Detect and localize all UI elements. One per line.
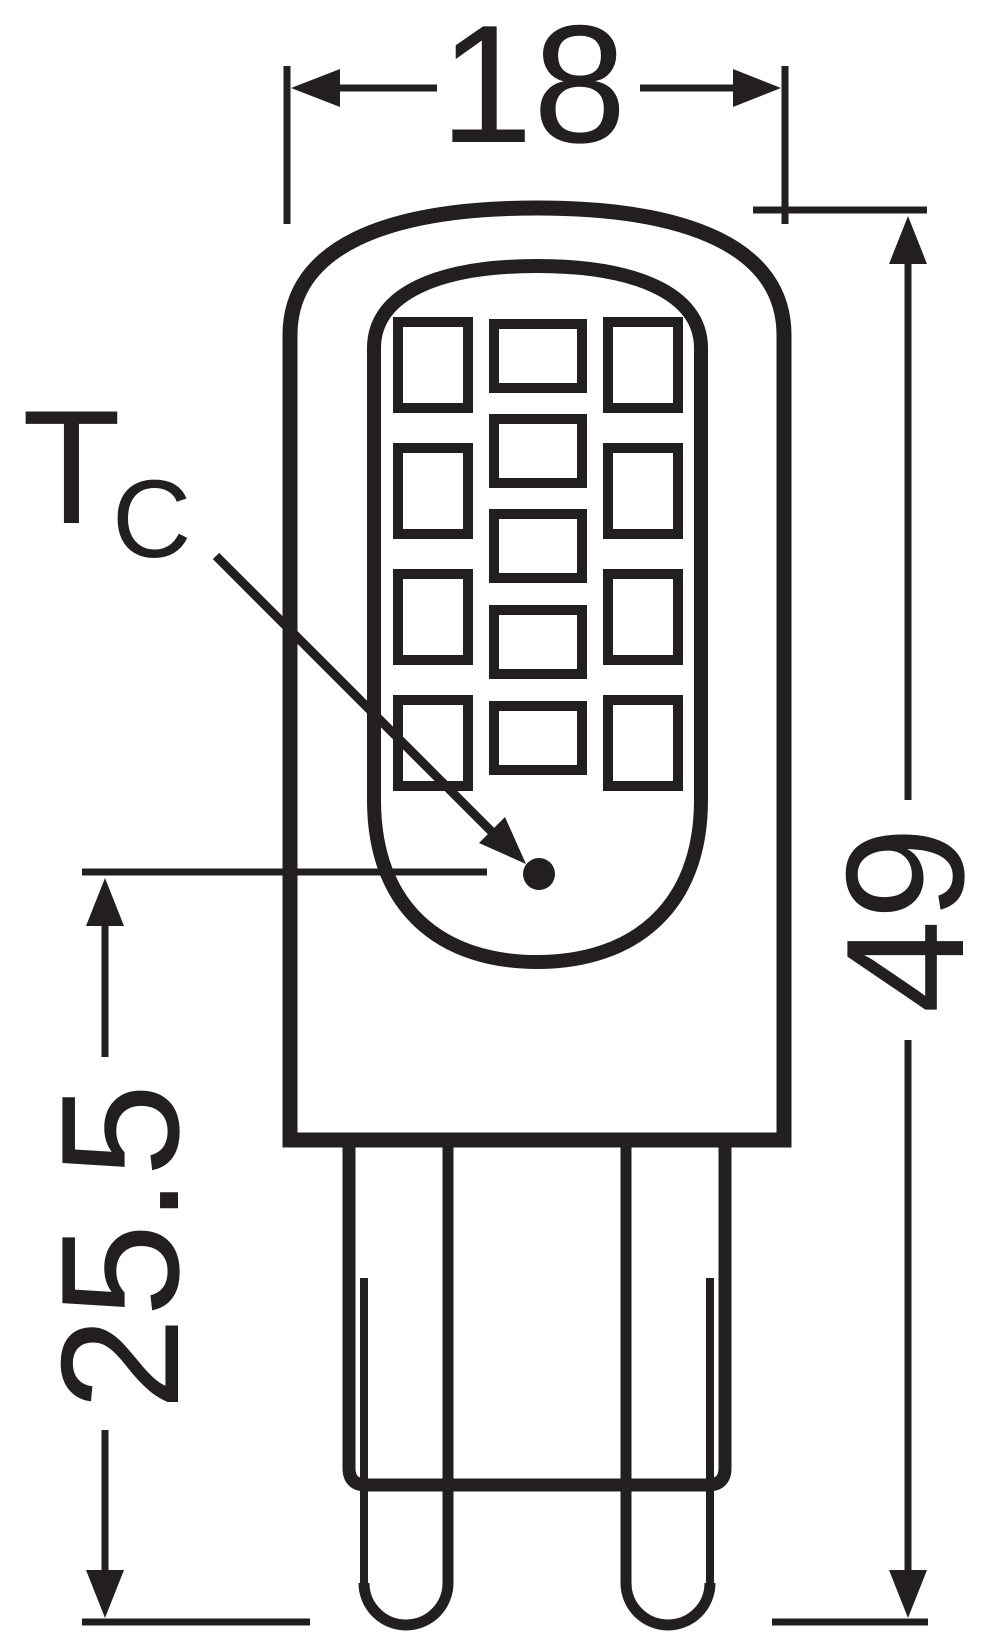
lamp-outline bbox=[290, 208, 784, 1625]
arrowhead-down-icon bbox=[86, 1570, 124, 1618]
led-chip bbox=[398, 448, 468, 534]
arrowhead-up-icon bbox=[86, 878, 124, 926]
dimension-drawing-page: 18 49 25.5 T C bbox=[0, 0, 1000, 1650]
pin-left bbox=[364, 1140, 448, 1625]
arrowhead-up-icon bbox=[889, 216, 927, 264]
tc-distance-value-label: 25.5 bbox=[26, 1084, 214, 1411]
led-chip bbox=[494, 610, 582, 674]
led-chip bbox=[398, 574, 468, 660]
pin-right bbox=[626, 1140, 710, 1625]
base-stem-outline bbox=[349, 1140, 725, 1485]
led-chip bbox=[494, 514, 582, 578]
tc-symbol-label: T bbox=[22, 377, 121, 558]
led-column-left bbox=[398, 322, 468, 786]
led-chip bbox=[608, 448, 678, 534]
dimension-tc-distance: 25.5 bbox=[26, 872, 487, 1622]
led-chip bbox=[494, 706, 582, 770]
overall-length-value-label: 49 bbox=[811, 827, 999, 1014]
led-chip bbox=[494, 419, 582, 483]
led-column-middle bbox=[494, 324, 582, 770]
led-chip bbox=[608, 700, 678, 786]
arrowhead-left-icon bbox=[291, 69, 340, 107]
led-column-right bbox=[608, 322, 678, 786]
tc-point-dot bbox=[523, 858, 555, 890]
pin-left-tip bbox=[364, 1583, 448, 1625]
arrowhead-right-icon bbox=[733, 69, 781, 107]
arrowhead-down-icon bbox=[889, 1570, 927, 1618]
width-value-label: 18 bbox=[440, 0, 627, 178]
tc-subscript-label: C bbox=[112, 458, 191, 581]
g9-lamp-dimension-diagram: 18 49 25.5 T C bbox=[0, 0, 1000, 1650]
led-chip bbox=[608, 574, 678, 660]
dimension-width: 18 bbox=[287, 0, 785, 224]
pin-right-tip bbox=[626, 1583, 710, 1625]
led-chip bbox=[398, 322, 468, 408]
led-chip bbox=[608, 322, 678, 408]
led-chip bbox=[494, 324, 582, 388]
